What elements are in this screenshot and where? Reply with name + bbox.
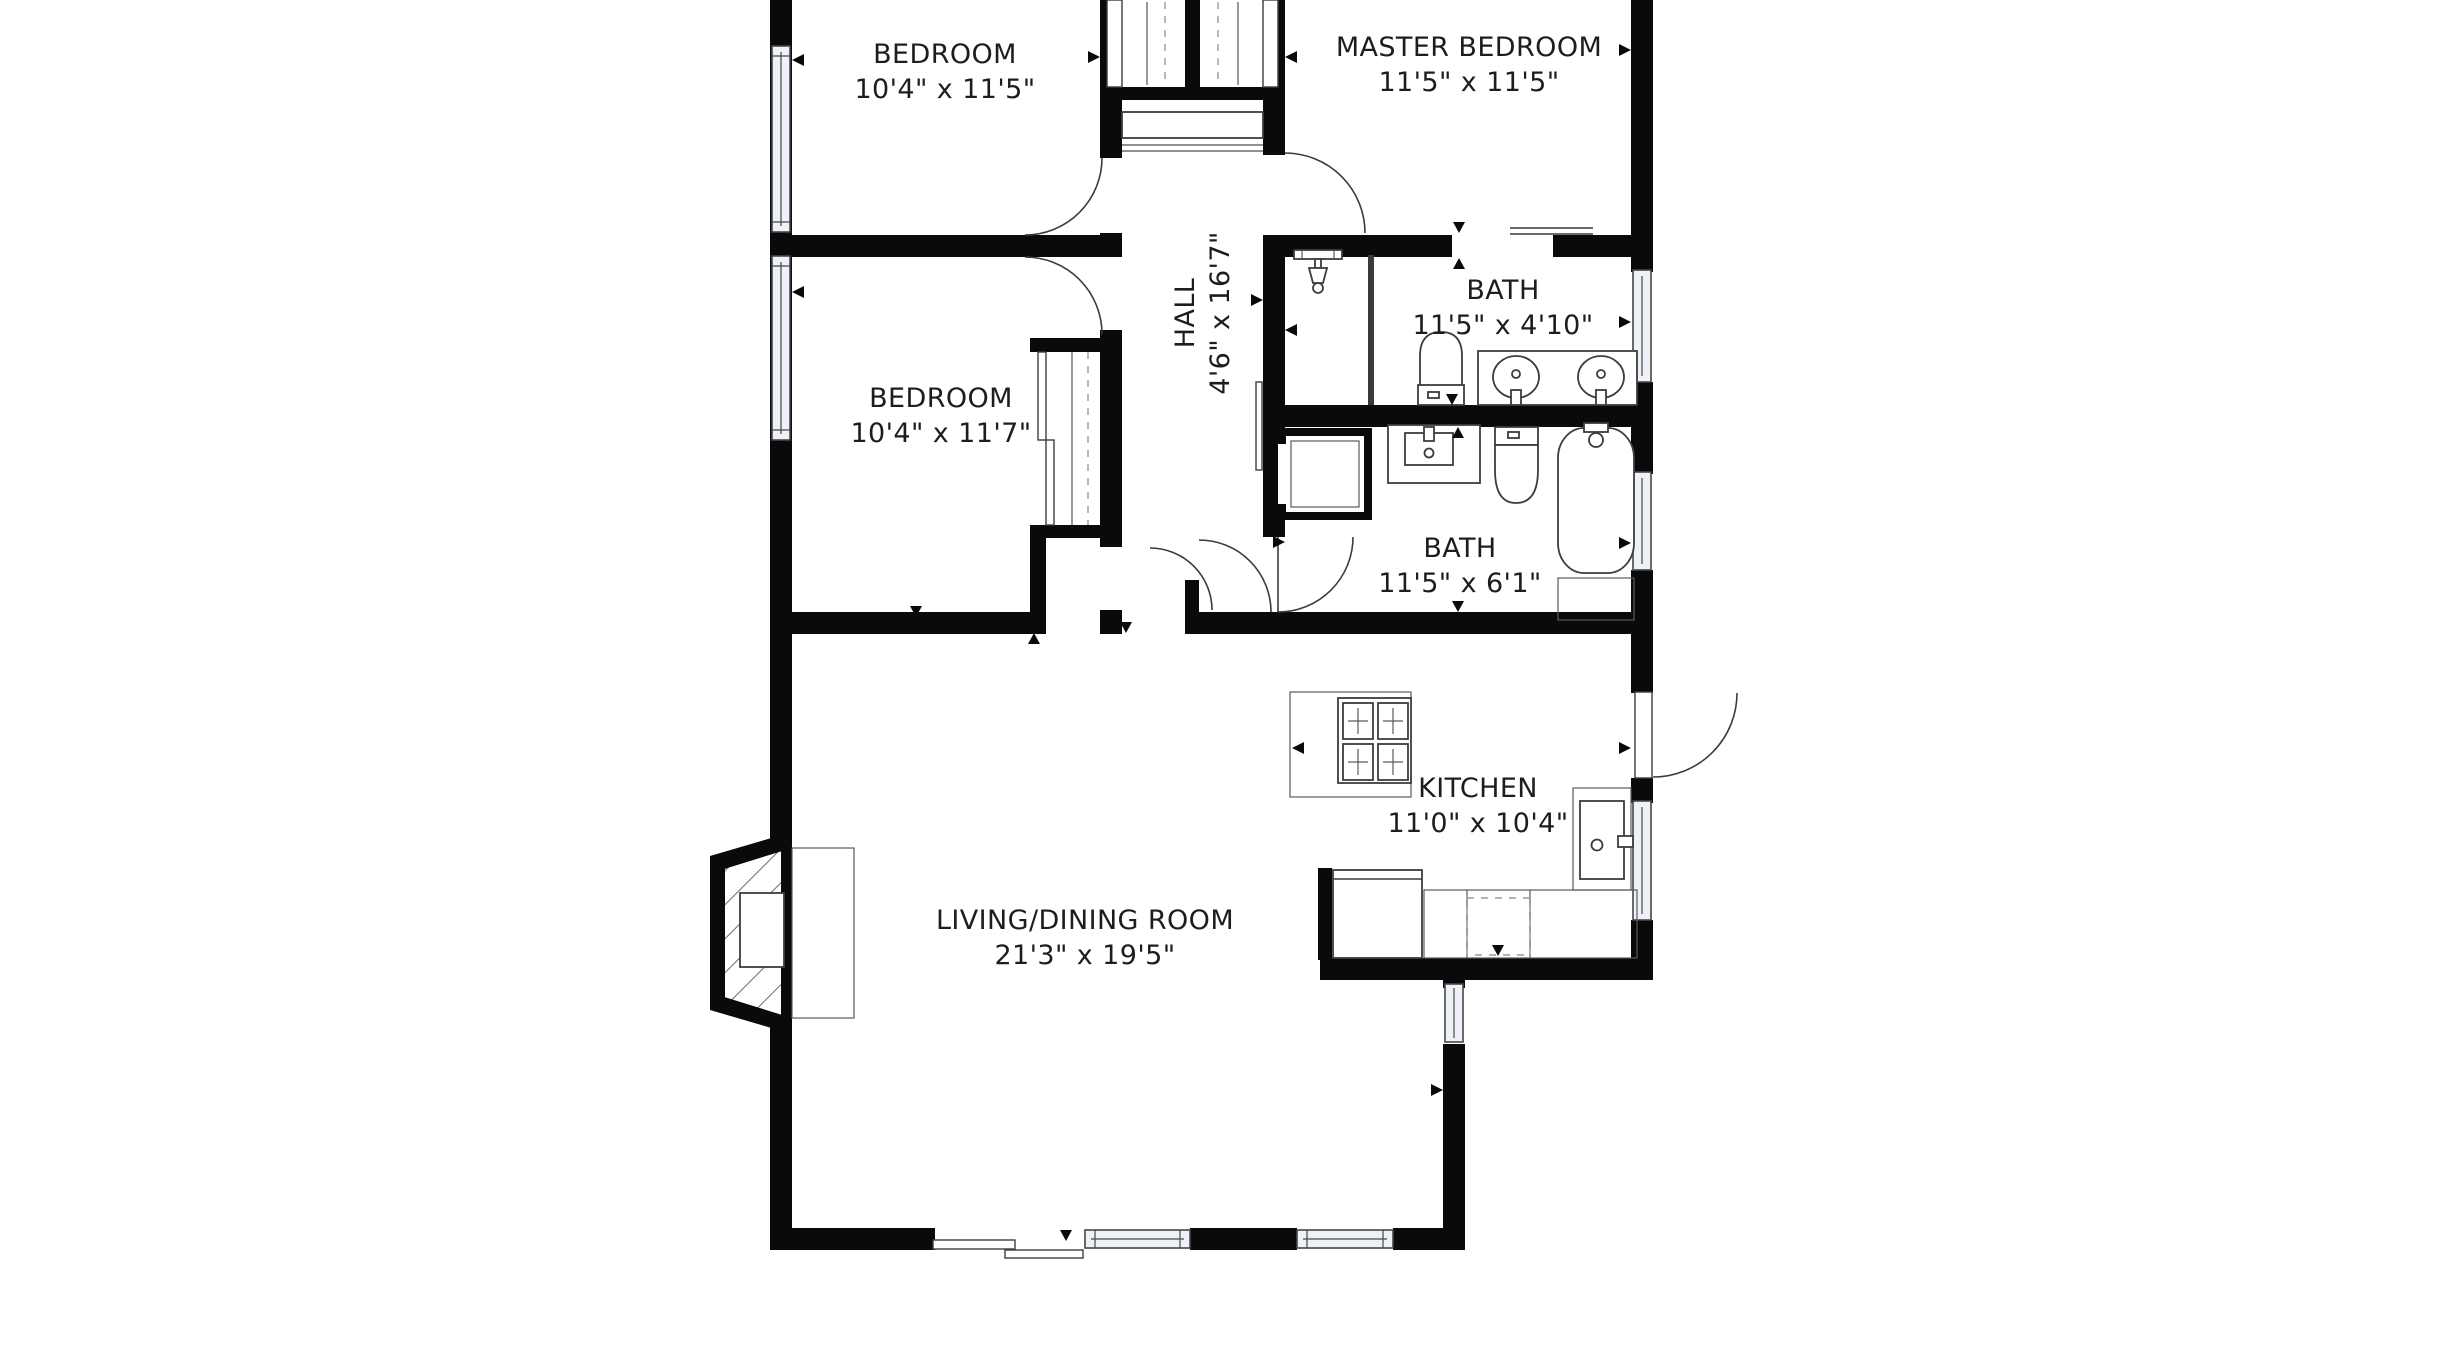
windows <box>772 46 1651 1248</box>
door-swing-icon <box>1285 153 1365 233</box>
room-dims: 10'4" x 11'7" <box>850 416 1031 451</box>
room-name: BATH <box>1378 531 1542 566</box>
room-dims: 10'4" x 11'5" <box>854 72 1035 107</box>
toilet-icon <box>1495 427 1538 503</box>
open-door-leaf-icon <box>1256 382 1262 470</box>
walls <box>770 0 1653 1250</box>
window-icon <box>772 46 790 232</box>
door-swing-icon <box>1025 158 1102 235</box>
window-icon <box>1085 1230 1190 1248</box>
room-label-hall: HALL 4'6" x 16'7" <box>1168 231 1238 395</box>
room-label-master-bedroom: MASTER BEDROOM 11'5" x 11'5" <box>1336 30 1602 100</box>
door-swing-icon <box>1025 257 1102 334</box>
room-name: HALL <box>1168 231 1203 395</box>
room-dims: 11'0" x 10'4" <box>1387 806 1568 841</box>
door-swing-icon <box>1150 548 1212 610</box>
window-icon <box>772 256 790 440</box>
doors <box>933 153 1737 1258</box>
room-name: BEDROOM <box>854 37 1035 72</box>
room-dims: 11'5" x 4'10" <box>1412 308 1593 343</box>
door-swing-icon <box>1635 692 1737 778</box>
room-dims: 4'6" x 16'7" <box>1203 231 1238 395</box>
window-icon <box>1297 1230 1393 1248</box>
closet-sliding-doors-icon <box>1038 352 1088 525</box>
room-dims: 11'5" x 6'1" <box>1378 566 1542 601</box>
room-label-bath-hall: BATH 11'5" x 6'1" <box>1378 531 1542 601</box>
closets <box>1038 0 1278 525</box>
room-dims: 11'5" x 11'5" <box>1336 65 1602 100</box>
shower-head-icon <box>1294 250 1342 293</box>
window-icon <box>1445 984 1463 1042</box>
kitchen-sink-icon <box>1573 788 1633 890</box>
window-icon <box>1633 472 1651 570</box>
room-name: LIVING/DINING ROOM <box>936 903 1234 938</box>
towel-bar-icon <box>1510 228 1593 234</box>
fireplace-icon <box>710 832 854 1034</box>
sliding-patio-door-icon <box>933 1240 1083 1258</box>
double-vanity-sink-icon <box>1478 351 1637 405</box>
refrigerator-icon <box>1333 870 1422 958</box>
room-name: KITCHEN <box>1387 771 1568 806</box>
room-label-living-dining: LIVING/DINING ROOM 21'3" x 19'5" <box>936 903 1234 973</box>
room-dims: 21'3" x 19'5" <box>936 938 1234 973</box>
dimension-arrows <box>792 44 1631 1241</box>
room-name: MASTER BEDROOM <box>1336 30 1602 65</box>
shower-stall-icon <box>1278 428 1372 520</box>
door-swing-icon <box>1199 540 1271 612</box>
room-label-bedroom-top: BEDROOM 10'4" x 11'5" <box>854 37 1035 107</box>
room-label-bath-master: BATH 11'5" x 4'10" <box>1412 273 1593 343</box>
room-label-kitchen: KITCHEN 11'0" x 10'4" <box>1387 771 1568 841</box>
door-swing-icon <box>1278 537 1353 612</box>
cased-opening <box>1122 112 1263 151</box>
room-name: BATH <box>1412 273 1593 308</box>
bathtub-icon <box>1558 423 1634 620</box>
window-icon <box>1633 801 1651 920</box>
room-name: BEDROOM <box>850 381 1031 416</box>
floor-plan: BEDROOM 10'4" x 11'5" MASTER BEDROOM 11'… <box>0 0 2440 1372</box>
floor-plan-drawing <box>0 0 2440 1372</box>
counter <box>1424 890 1637 958</box>
vanity-sink-icon <box>1388 425 1480 483</box>
room-label-bedroom-mid: BEDROOM 10'4" x 11'7" <box>850 381 1031 451</box>
